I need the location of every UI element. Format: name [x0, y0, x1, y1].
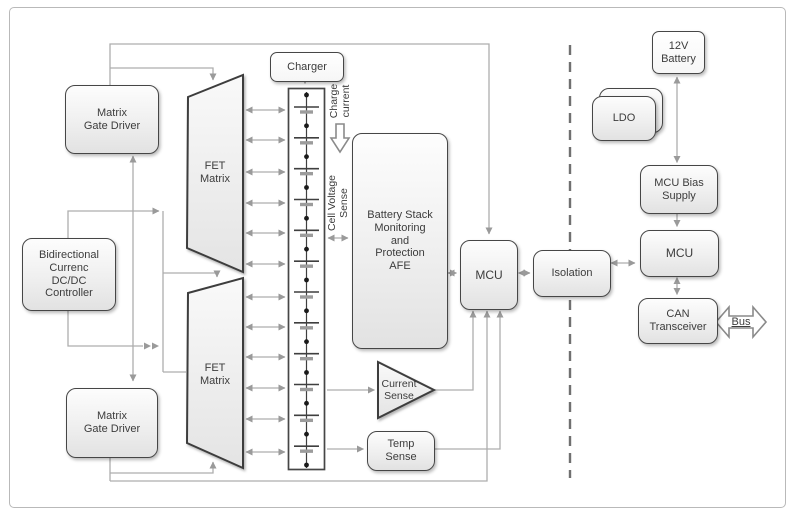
- wire-gd2-to-fet2: [110, 462, 213, 473]
- block-isolation: Isolation: [533, 250, 611, 297]
- fet-matrix-top-label: FET Matrix: [187, 158, 243, 188]
- block-ldo: LDO: [592, 96, 656, 141]
- cell-voltage-sense-label: Cell Voltage Sense: [308, 171, 368, 235]
- battery-tap-arrows: [246, 110, 285, 452]
- charge-current-arrow-icon: [331, 124, 349, 152]
- block-mcu-secondary: MCU: [640, 230, 719, 277]
- block-mcu-bias-supply: MCU Bias Supply: [640, 165, 718, 214]
- block-can-transceiver: CAN Transceiver: [638, 298, 718, 344]
- wire-fet-junction: [163, 273, 217, 277]
- wire-bidir-bottom: [68, 308, 143, 346]
- block-matrix-gate-driver-top: Matrix Gate Driver: [65, 85, 159, 154]
- double-arrowhead-icon: [144, 343, 159, 350]
- block-matrix-gate-driver-bottom: Matrix Gate Driver: [66, 388, 158, 458]
- charge-current-label: Charge current: [315, 76, 365, 126]
- wire-bidir-top: [68, 211, 159, 238]
- block-afe: Battery Stack Monitoring and Protection …: [352, 133, 448, 349]
- current-sense-label: Current Sense: [378, 376, 420, 404]
- bus-label: Bus: [726, 312, 756, 332]
- block-bidirectional-controller: Bidirectional Currenc DC/DC Controller: [22, 238, 116, 311]
- block-mcu-primary: MCU: [460, 240, 518, 310]
- wire-to-fet-top: [110, 68, 213, 80]
- block-temp-sense: Temp Sense: [367, 431, 435, 471]
- bms-block-diagram: Matrix Gate Driver Bidirectional Currenc…: [0, 0, 794, 517]
- block-12v-battery: 12V Battery: [652, 31, 705, 74]
- fet-matrix-bottom-label: FET Matrix: [187, 360, 243, 390]
- battery-stack: [289, 89, 325, 470]
